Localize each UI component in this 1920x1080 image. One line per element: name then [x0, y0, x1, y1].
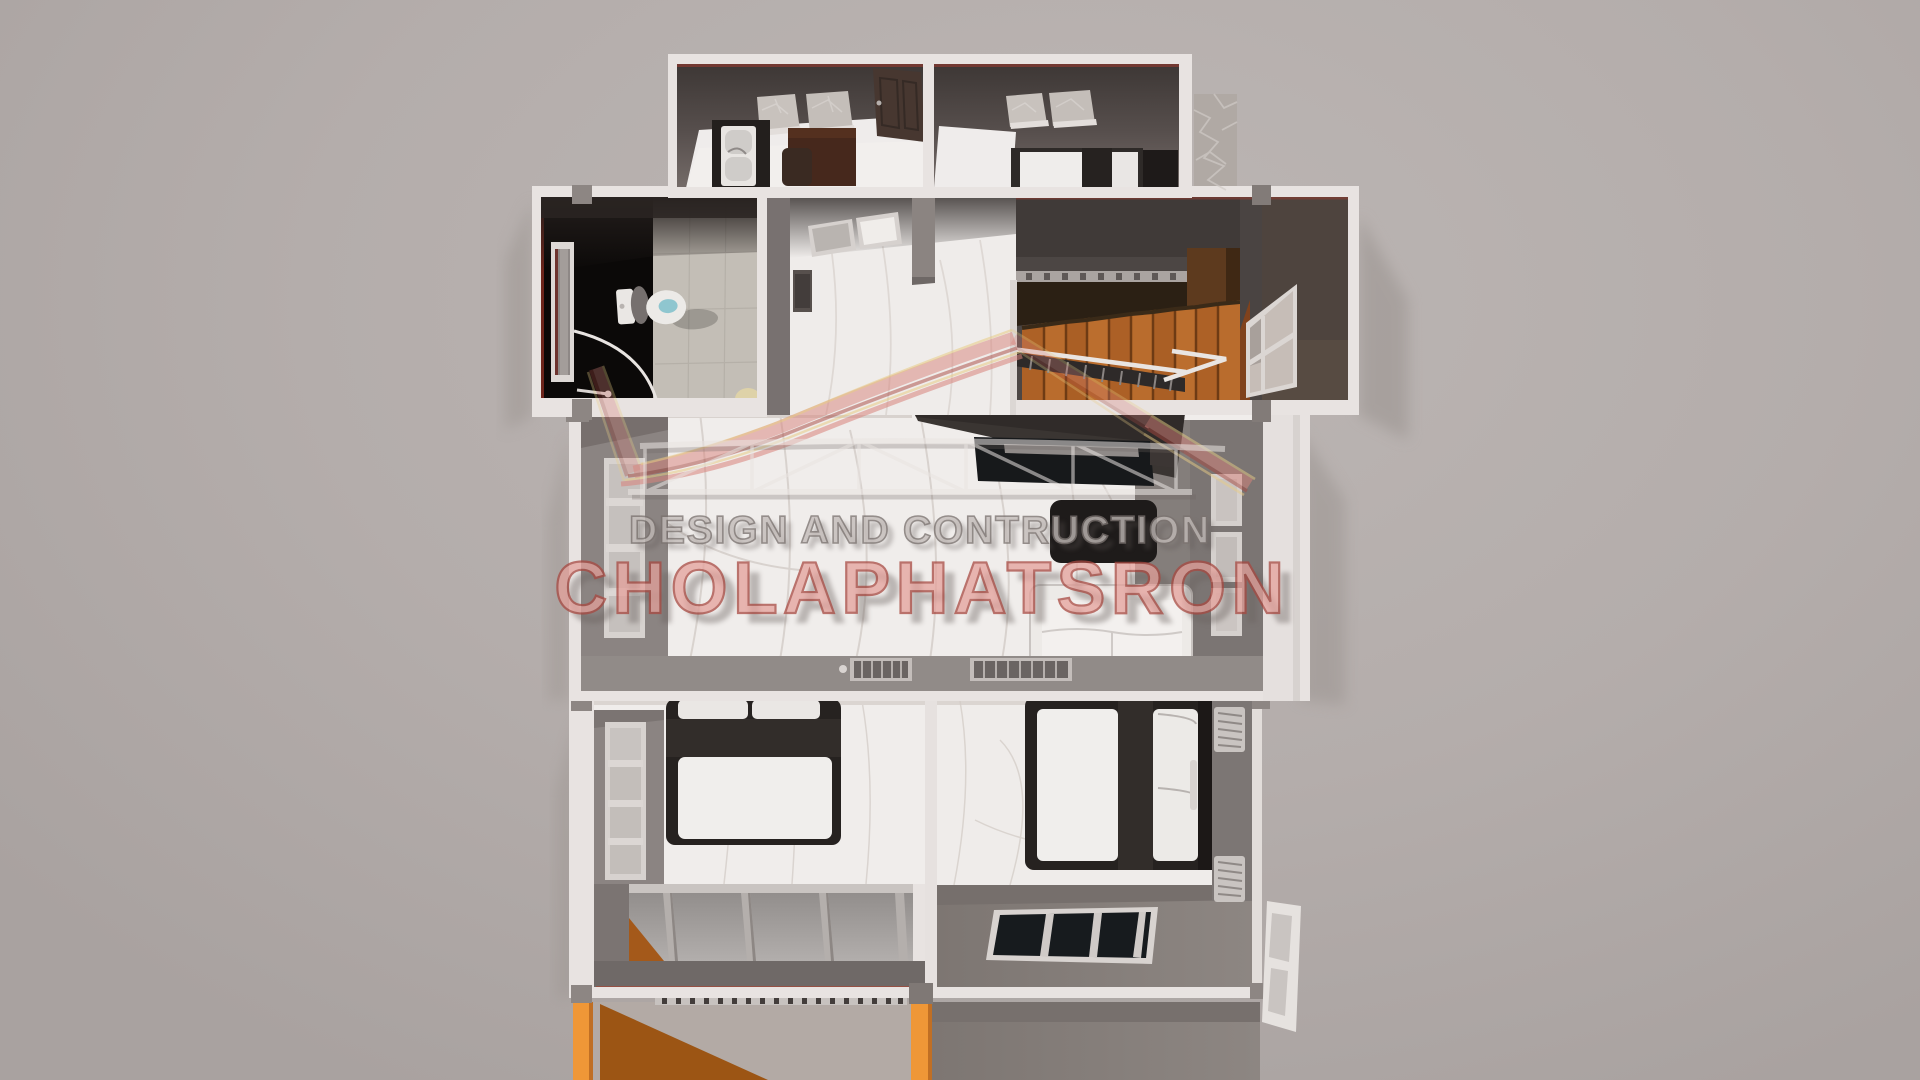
svg-text:CHOLAPHATSRON: CHOLAPHATSRON: [554, 548, 1289, 629]
svg-text:DESIGN AND CONTRUCTION: DESIGN AND CONTRUCTION: [629, 509, 1211, 552]
